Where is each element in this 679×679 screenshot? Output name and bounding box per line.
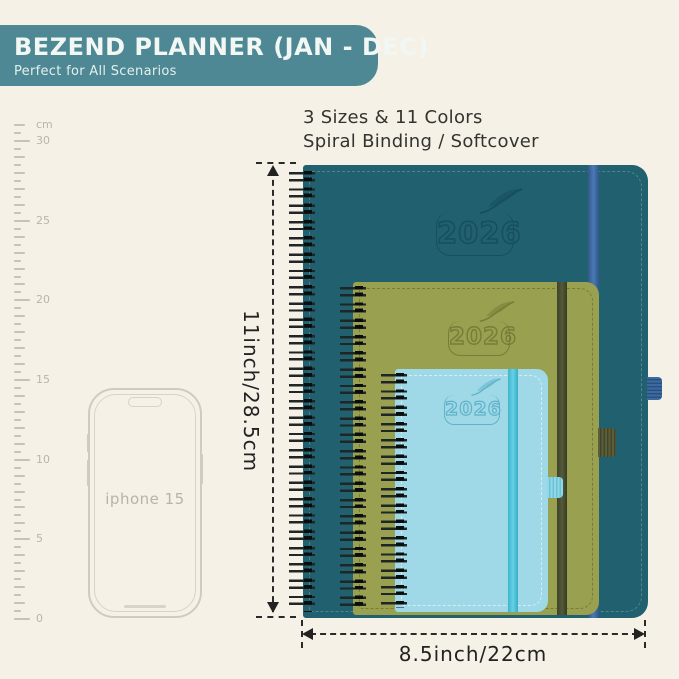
ruler-tick [14, 499, 21, 501]
dim-line-vertical [272, 170, 274, 612]
emboss-frame: 2026 [444, 395, 500, 425]
ruler-tick [14, 530, 21, 532]
ruler-tick [14, 387, 21, 389]
width-dimension-label: 8.5inch/22cm [399, 642, 547, 666]
ruler-label: 5 [36, 532, 43, 545]
ruler-tick [14, 506, 25, 508]
ruler-tick [14, 379, 30, 381]
ruler-tick [14, 236, 25, 238]
ruler-label: 20 [36, 293, 50, 306]
iphone-home-indicator [124, 605, 166, 608]
iphone-label: iphone 15 [90, 490, 200, 508]
ruler-tick [14, 260, 21, 262]
ruler-tick [14, 546, 21, 548]
iphone-side-button [201, 454, 203, 484]
ruler-tick [14, 339, 21, 341]
ruler-tick [14, 315, 25, 317]
year-emboss: 2026 [444, 377, 534, 427]
ruler-tick [14, 172, 25, 174]
feature-lines: 3 Sizes & 11 Colors Spiral Binding / Sof… [303, 106, 539, 154]
emboss-frame: 2026 [436, 212, 514, 256]
ruler-tick [14, 594, 21, 596]
ruler-tick [14, 124, 25, 126]
ruler-tick [14, 371, 21, 373]
ruler-tick [14, 323, 21, 325]
ruler-tick [14, 419, 21, 421]
spiral-binding [289, 172, 315, 612]
feather-icon [478, 187, 524, 215]
ruler-tick [14, 554, 25, 556]
dim-cap-top [256, 162, 296, 164]
ruler-label: 30 [36, 134, 50, 147]
ruler-tick [14, 331, 25, 333]
ruler-tick [14, 570, 25, 572]
ruler-tick [14, 156, 25, 158]
ruler-tick [14, 602, 25, 604]
feather-icon [478, 300, 516, 323]
small-planner: 2026 [395, 369, 548, 612]
ruler-tick [14, 514, 21, 516]
iphone-notch [128, 397, 162, 407]
pen-loop [598, 428, 616, 457]
ruler-tick [14, 411, 25, 413]
ruler-tick [14, 204, 25, 206]
dim-line-horizontal [310, 633, 638, 635]
ruler-tick [14, 140, 30, 142]
year-2026: 2026 [445, 398, 502, 420]
feature-binding: Spiral Binding / Softcover [303, 130, 539, 154]
ruler-label: 10 [36, 453, 50, 466]
ruler-tick [14, 132, 21, 134]
ruler-tick [14, 586, 25, 588]
arrowhead-down [267, 602, 279, 613]
ruler-tick [14, 220, 30, 222]
ruler-tick [14, 283, 25, 285]
ruler-tick [14, 443, 25, 445]
ruler-tick [14, 148, 21, 150]
ruler-tick [14, 355, 21, 357]
spiral-binding [381, 374, 407, 608]
height-dimension-label: 11inch/28.5cm [239, 310, 263, 472]
ruler-tick [14, 395, 25, 397]
year-emboss: 2026 [436, 187, 556, 257]
elastic-band [557, 282, 567, 615]
ruler-tick [14, 180, 21, 182]
arrowhead-up [267, 165, 279, 176]
ruler-tick [14, 610, 21, 612]
arrowhead-right [634, 628, 645, 640]
ruler-tick [14, 268, 25, 270]
ruler-tick [14, 435, 21, 437]
year-2026: 2026 [449, 324, 517, 350]
product-image: BEZEND PLANNER (JAN - DEC) Perfect for A… [0, 0, 679, 679]
ruler-tick [14, 347, 25, 349]
ruler-tick [14, 164, 21, 166]
iphone-outline: iphone 15 [88, 388, 202, 618]
ruler-tick [14, 291, 21, 293]
dim-cap-bottom [256, 616, 296, 618]
pen-loop [647, 377, 662, 400]
ruler-tick [14, 228, 21, 230]
iphone-side-button [87, 460, 89, 486]
ruler-tick [14, 538, 30, 540]
ruler-tick [14, 403, 21, 405]
ruler-tick [14, 578, 21, 580]
iphone-side-button [87, 434, 89, 452]
ruler-tick [14, 307, 21, 309]
ruler-tick [14, 562, 21, 564]
ruler-label: 15 [36, 373, 50, 386]
ruler-tick [14, 427, 25, 429]
ruler-label: cm [36, 118, 53, 131]
ruler-tick [14, 491, 25, 493]
feather-icon [470, 377, 502, 397]
year-2026: 2026 [437, 216, 522, 250]
arrowhead-left [302, 628, 313, 640]
ruler-tick [14, 212, 21, 214]
spiral-binding [340, 287, 366, 611]
emboss-frame: 2026 [448, 321, 510, 356]
ruler-tick [14, 363, 25, 365]
ruler-tick [14, 522, 25, 524]
feature-sizes-colors: 3 Sizes & 11 Colors [303, 106, 539, 130]
ruler-tick [14, 252, 25, 254]
ruler-tick [14, 483, 21, 485]
ruler-tick [14, 618, 30, 620]
ruler-tick [14, 276, 21, 278]
ruler-label: 25 [36, 214, 50, 227]
pen-loop [547, 477, 563, 498]
ruler-tick [14, 244, 21, 246]
ruler-tick [14, 299, 30, 301]
ruler-tick [14, 188, 25, 190]
ruler-tick [14, 467, 21, 469]
ruler-tick [14, 459, 30, 461]
ruler-tick [14, 475, 25, 477]
year-emboss: 2026 [448, 300, 548, 358]
ruler-tick [14, 451, 21, 453]
ruler-tick [14, 196, 21, 198]
cm-ruler: 051015202530cm [14, 0, 74, 679]
ruler-label: 0 [36, 612, 43, 625]
